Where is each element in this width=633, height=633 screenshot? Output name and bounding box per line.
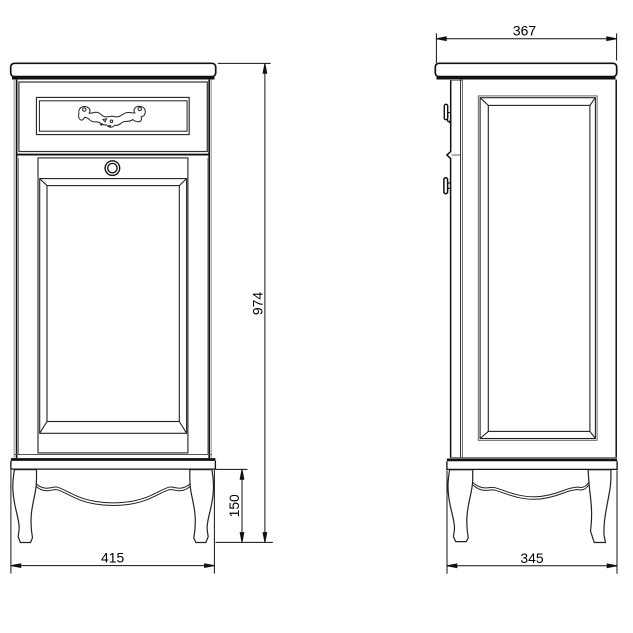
svg-text:415: 415 xyxy=(101,550,124,566)
svg-text:345: 345 xyxy=(520,550,543,566)
svg-text:150: 150 xyxy=(226,494,242,517)
svg-text:974: 974 xyxy=(250,292,266,315)
svg-text:367: 367 xyxy=(513,22,536,38)
